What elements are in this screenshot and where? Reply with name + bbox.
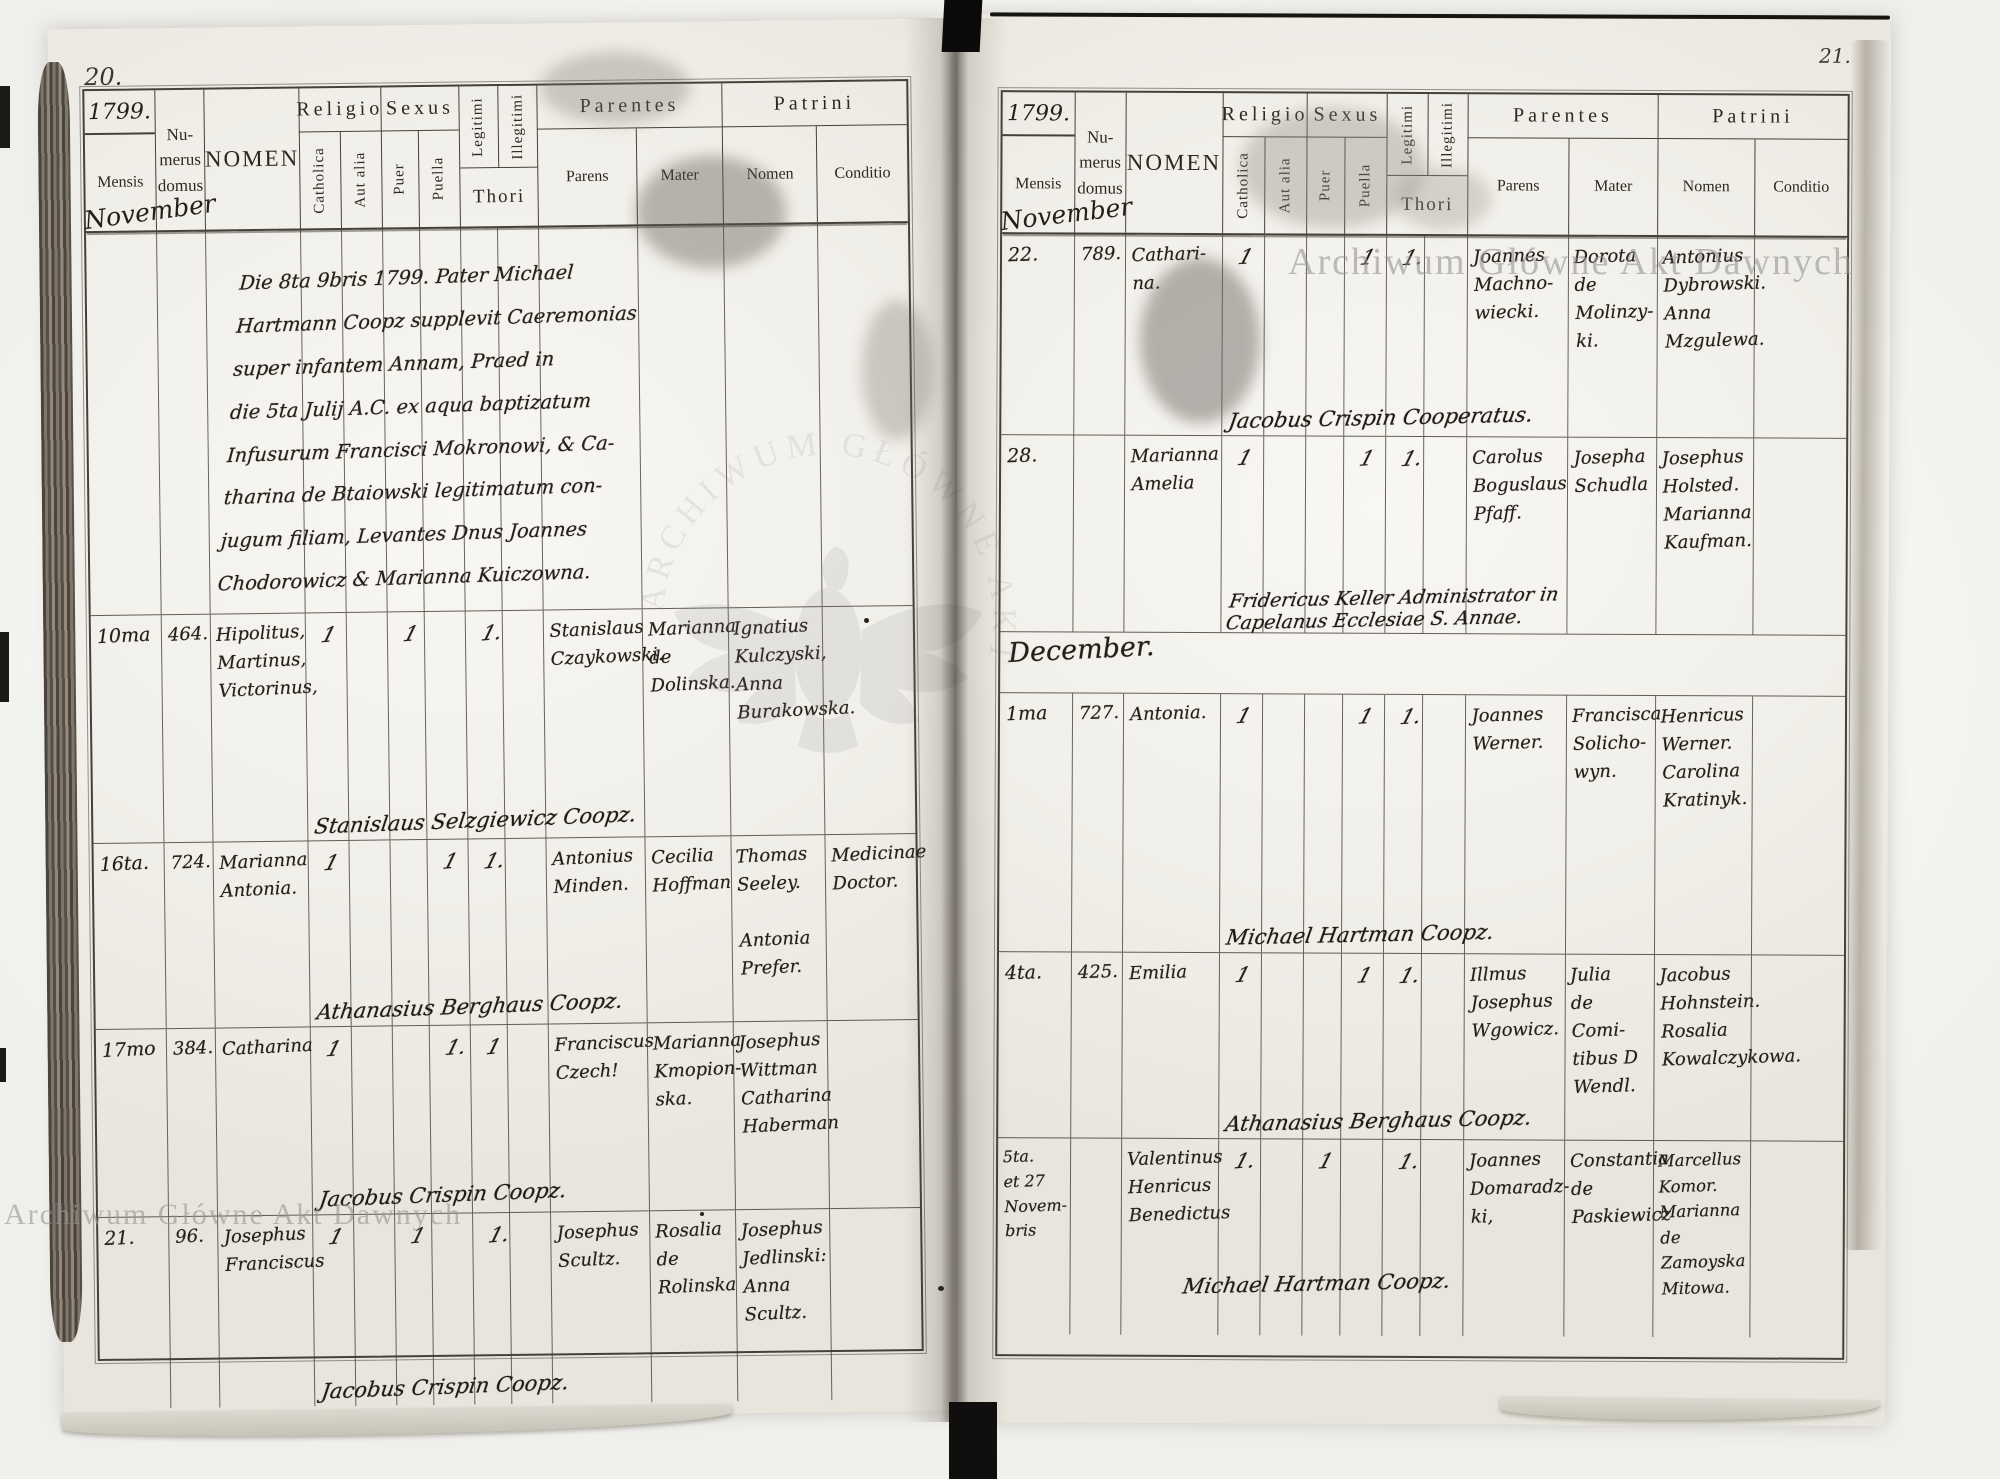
entry-mater: Cecilia Hoffman <box>650 841 730 900</box>
entry-parens: Joannes Domaradz- ki, <box>1468 1145 1563 1231</box>
ink-dot <box>938 1286 944 1291</box>
ink-dot <box>700 1212 704 1216</box>
entry-patrini: Henricus Werner. Carolina Kratinyk. <box>1660 701 1752 815</box>
entry-row: 17mo 384. Catharina 1 1. 1 Franciscus Cz… <box>96 1019 920 1217</box>
legitimi-header: Legitimi <box>459 86 498 168</box>
legitimi-mark: 1. <box>1385 959 1425 993</box>
binding-tape-bottom <box>949 1402 997 1479</box>
entry-conditio <box>1759 701 1843 704</box>
mensis-label: Mensis <box>1015 175 1061 193</box>
entry-date: 10ma <box>96 620 159 652</box>
entry-conditio <box>1757 1146 1841 1149</box>
page-number-left: 20. <box>84 63 123 91</box>
entry-date: 22. <box>1008 239 1073 270</box>
entry-nomen: Antonia. <box>1129 699 1218 730</box>
entry-house-number: 425. <box>1077 958 1120 987</box>
month-section-row: December. <box>1000 631 1845 696</box>
entry-mater: Constantia de Paskiewicz <box>1570 1146 1652 1232</box>
entry-house-number: 724. <box>170 848 212 878</box>
year-handwritten: 1799. <box>84 90 154 135</box>
entry-nomen: Catharina <box>222 1032 309 1064</box>
entry-patrini: Thomas Seeley. Antonia Prefer. <box>735 840 827 983</box>
entry-house-number: 789. <box>1080 240 1123 269</box>
entry-house-number: 96. <box>175 1222 217 1252</box>
mater-header: Mater <box>1568 139 1657 235</box>
mensis-column-header: 1799. Mensis November <box>1002 92 1074 232</box>
entry-patrini: Ignatius Kulczyski, Anna Burakowska. <box>733 612 824 727</box>
officiant-signature: Fridericus Keller Administrator in Capel… <box>1225 583 1561 634</box>
table-header-right: 1799. Mensis November Nu- merus domus NO… <box>1002 92 1848 238</box>
cover-edge-mark <box>0 86 10 148</box>
month-section-label: December. <box>1008 631 1155 669</box>
legitimi-mark: 1. <box>1384 1145 1424 1179</box>
entry-row: 5ta. et 27 Novem- bris Valentinus Henric… <box>997 1137 1843 1338</box>
entry-mater: Rosalia de Rolinska <box>654 1215 735 1302</box>
puella-mark: 1 <box>1345 442 1379 476</box>
register-table-left: 1799. Mensis November Nu- merus domus NO… <box>82 79 923 1361</box>
entry-date: 5ta. et 27 Novem- bris <box>1002 1143 1069 1244</box>
legitimi-mark: 1. <box>1387 442 1427 476</box>
entry-patrini: Antonius Dybrowski. Anna Mzgulewa. <box>1662 242 1754 356</box>
religio-header: Religio <box>298 88 381 133</box>
entry-parens: Josephus Scultz. <box>556 1216 648 1276</box>
entry-row: 4ta. 425. Emilia 1 1 1. Illmus Josephus … <box>998 951 1844 1141</box>
entry-row: 28. Marianna Amelia 1 1 1. Carolus Bogus… <box>1000 434 1846 635</box>
aut-alia-header: Aut alia <box>340 131 382 227</box>
entry-nomen: Valentinus Henricus Benedictus <box>1126 1144 1217 1230</box>
entry-mater: Josepha Schudla <box>1573 443 1654 501</box>
entry-patrini: Jacobus Hohnstein. Rosalia Kowalczykowa. <box>1659 960 1751 1074</box>
entry-nomen: Hipolitus, Martinus, Victorinus, <box>216 618 305 706</box>
entry-nomen: Josephus Franciscus <box>223 1220 311 1280</box>
puella-header: Puella <box>1344 138 1387 234</box>
conditio-header: Conditio <box>816 125 908 222</box>
register-page-right: 21. 1799. Mensis November Nu- merus domu… <box>953 14 1891 1426</box>
sexus-header: Sexus <box>380 87 459 132</box>
entry-date: 4ta. <box>1004 957 1069 988</box>
entry-patrini: Josephus Wittman Catharina Haberman <box>738 1026 829 1141</box>
entry-conditio <box>829 611 910 615</box>
thori-label: Thori <box>1388 175 1468 234</box>
entry-patrini: Marcellus Komor. Marianna de Zamoyska Mi… <box>1657 1146 1750 1302</box>
register-page-left: 20. 1799. Mensis November Nu- merus domu… <box>48 19 967 1422</box>
catholica-mark: 1 <box>1224 241 1258 275</box>
entry-house-number: 384. <box>172 1034 214 1064</box>
legitimi-mark: 1. <box>1388 241 1428 275</box>
entry-conditio <box>834 1025 915 1029</box>
puer-mark: 1 <box>1304 1145 1338 1179</box>
entry-parens: Antonius Minden. <box>552 842 644 902</box>
entry-parens: Joannes Werner. <box>1471 700 1565 759</box>
mensis-column-header: 1799. Mensis November <box>84 90 156 231</box>
puella-mark: 1. <box>431 1030 471 1065</box>
catholica-mark: 1 <box>310 846 343 881</box>
catholica-mark: 1 <box>307 618 340 653</box>
entry-row: 21. 96. Josephus Franciscus 1 1 1. Josep… <box>98 1207 922 1409</box>
puella-mark: 1 <box>1346 241 1380 275</box>
puer-mark: 1 <box>396 1219 429 1254</box>
thori-header: Legitimi Illegitimi Thori <box>1387 94 1468 234</box>
entry-patrini: Josephus Jedlinski: Anna Scultz. <box>740 1214 831 1329</box>
register-table-right: 1799. Mensis November Nu- merus domus NO… <box>995 90 1850 1360</box>
entry-nomen: Cathari- na. <box>1131 240 1221 298</box>
puella-mark: 1 <box>429 845 462 880</box>
parens-header: Parens <box>537 128 637 225</box>
illegitimi-header: Illegitimi <box>1427 94 1467 175</box>
catholica-mark: 1 <box>1220 958 1254 992</box>
entry-house-number: 727. <box>1078 699 1121 728</box>
parentes-header: Parentes <box>536 83 721 129</box>
page-edge-right <box>1842 40 1890 1250</box>
catholica-mark: 1 <box>312 1032 345 1067</box>
aut-alia-header: Aut alia <box>1264 137 1307 233</box>
patrini-nomen-header: Nomen <box>722 126 818 223</box>
puella-mark: 1 <box>1343 959 1377 993</box>
marginal-note-row: Die 8ta 9bris 1799. Pater Michael Hartma… <box>86 223 913 615</box>
ink-dot <box>864 618 869 623</box>
entry-parens: Illmus Josephus Wgowicz. <box>1469 959 1564 1045</box>
entry-row: 10ma 464. Hipolitus, Martinus, Victorinu… <box>91 605 916 843</box>
catholica-mark: 1 <box>314 1220 347 1255</box>
catholica-header: Catholica <box>1222 137 1265 233</box>
cover-edge-mark <box>0 632 9 702</box>
legitimi-mark: 1 <box>472 1030 505 1065</box>
year-handwritten: 1799. <box>1003 92 1075 136</box>
puella-header: Puella <box>418 131 460 227</box>
entry-nomen: Marianna Amelia <box>1130 441 1220 499</box>
puer-header: Puer <box>1306 137 1344 233</box>
puer-mark: 1 <box>389 617 422 652</box>
entry-parens: Stanislaus Czaykowski. <box>549 614 641 674</box>
religio-header: Religio <box>1222 93 1307 137</box>
legitimi-header: Legitimi <box>1388 94 1427 175</box>
catholica-mark: 1 <box>1222 699 1256 733</box>
entry-mater: Marianna de Dolinska. <box>647 613 728 700</box>
cover-edge-mark <box>0 1048 6 1082</box>
entry-date: 1ma <box>1006 698 1071 729</box>
entry-row: 22. 789. Cathari- na. 1 1 1. Joannes Mac… <box>1001 234 1847 438</box>
catholica-mark: 1. <box>1220 1144 1260 1178</box>
entry-conditio <box>1761 242 1845 245</box>
catholica-mark: 1 <box>1223 441 1257 475</box>
puer-header: Puer <box>381 131 419 227</box>
marginal-note-text: Die 8ta 9bris 1799. Pater Michael Hartma… <box>216 245 783 607</box>
entry-parens: Joannes Machno- wiecki. <box>1472 241 1567 327</box>
mensis-label: Mensis <box>97 173 143 192</box>
puella-mark: 1 <box>1344 700 1378 734</box>
conditio-header: Conditio <box>1754 139 1847 235</box>
table-header-left: 1799. Mensis November Nu- merus domus NO… <box>84 81 908 233</box>
entry-conditio <box>1760 443 1844 446</box>
patrini-nomen-header: Nomen <box>1657 139 1755 235</box>
binding-tape-top <box>942 0 983 52</box>
nomen-header: NOMEN <box>203 89 299 230</box>
nomen-header: NOMEN <box>1125 93 1223 233</box>
entry-date: 17mo <box>101 1034 164 1066</box>
entry-house-number: 464. <box>167 620 209 650</box>
entry-nomen: Emilia <box>1128 958 1217 989</box>
entry-row: 1ma 727. Antonia. 1 1 1. Joannes Werner.… <box>999 692 1845 955</box>
mater-header: Mater <box>635 127 722 224</box>
illegitimi-header: Illegitimi <box>497 86 537 168</box>
entry-nomen: Marianna Antonia. <box>219 846 307 906</box>
entry-conditio <box>1758 960 1842 963</box>
page-number-right: 21. <box>1819 44 1851 68</box>
patrini-header: Patrini <box>1657 95 1847 140</box>
thori-header: Legitimi Illegitimi Thori <box>458 86 538 227</box>
entry-conditio: Medicinae Doctor. <box>831 839 915 899</box>
entry-mater: Julia de Comi- tibus D Wendl. <box>1570 960 1654 1102</box>
entry-date: 28. <box>1007 440 1072 471</box>
entry-mater: Dorota de Molinzy- ki. <box>1573 242 1656 356</box>
sexus-header: Sexus <box>1307 93 1387 137</box>
entry-parens: Franciscus Czech! <box>554 1028 646 1088</box>
entry-house-number <box>1080 441 1122 442</box>
entry-house-number <box>1077 1144 1119 1145</box>
thori-label: Thori <box>460 167 538 227</box>
entry-parens: Carolus Boguslaus Pfaff. <box>1471 442 1566 528</box>
legitimi-mark: 1. <box>1386 700 1426 734</box>
entry-mater: Marianna Kmopion- ska. <box>652 1027 733 1114</box>
catholica-header: Catholica <box>298 132 340 228</box>
patrini-header: Patrini <box>721 81 906 127</box>
entry-date: 16ta. <box>99 848 162 880</box>
parens-header: Parens <box>1467 138 1569 234</box>
entry-conditio <box>837 1213 918 1217</box>
entry-row: 16ta. 724. Marianna Antonia. 1 1 1. Anto… <box>93 833 917 1029</box>
entry-patrini: Josephus Holsted. Marianna Kaufman. <box>1661 443 1753 557</box>
entry-mater: Francisca Solicho- wyn. <box>1572 701 1654 787</box>
entry-date: 21. <box>104 1222 167 1254</box>
parentes-header: Parentes <box>1467 94 1657 139</box>
